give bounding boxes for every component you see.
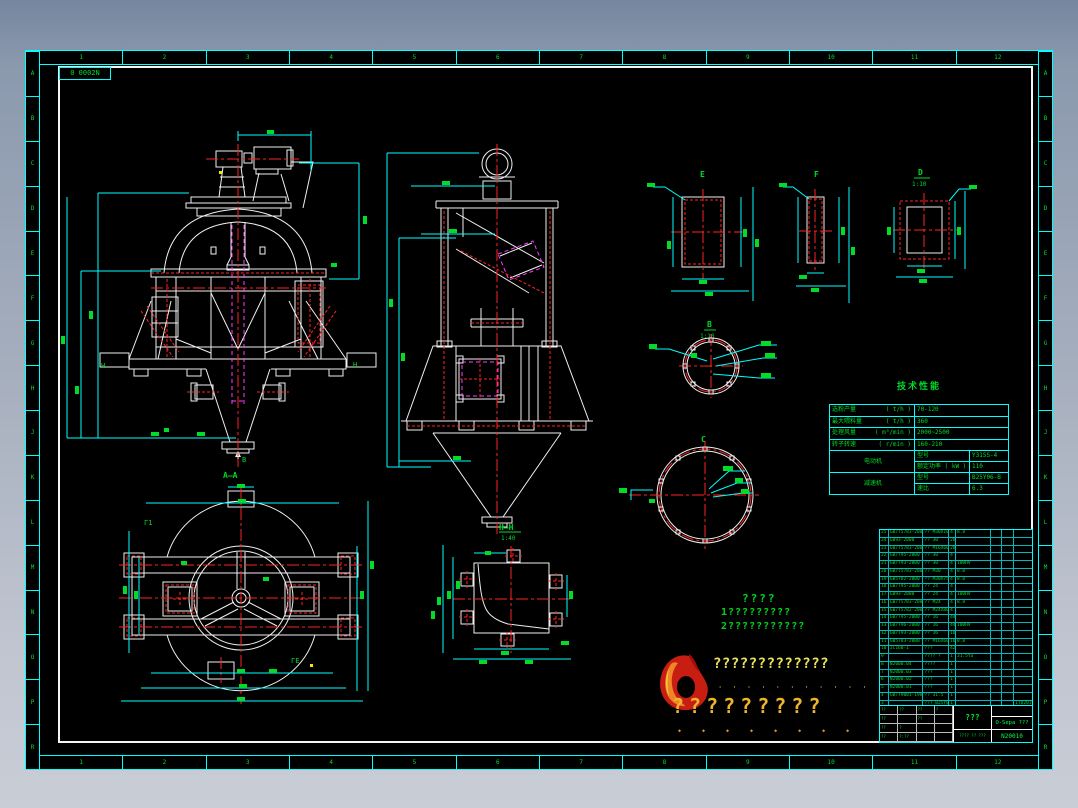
bom-row: 4GB/T9001-1985?? 31.51 bbox=[880, 693, 1032, 701]
title-block-empty-cell bbox=[992, 706, 1032, 717]
bom-cell bbox=[1014, 577, 1032, 584]
bom-cell: 23 bbox=[880, 546, 889, 553]
bom-cell bbox=[1014, 546, 1032, 553]
bom-cell bbox=[991, 670, 1003, 677]
bom-cell: 4 bbox=[949, 608, 956, 615]
bom-row: 10JC160-1???42 bbox=[880, 646, 1032, 654]
bom-cell: ?? M30X100 bbox=[923, 530, 949, 537]
bom-cell: 4 bbox=[949, 561, 956, 568]
plan-section-mark-1: Γ1 bbox=[144, 519, 152, 527]
bom-cell: GB/T5783-2000 bbox=[889, 569, 924, 576]
section-mark-h-left: H bbox=[101, 362, 105, 370]
bom-cell: ???? ? bbox=[923, 654, 949, 661]
bom-row: 23GB/T5783-2000?? M16X6020 bbox=[880, 546, 1032, 554]
bom-cell: 4 bbox=[949, 600, 956, 607]
bom-cell bbox=[991, 608, 1003, 615]
bom-cell bbox=[1002, 631, 1014, 638]
section-mark-h-right: H bbox=[353, 361, 357, 369]
bom-cell: 8.8 bbox=[956, 639, 991, 646]
bom-cell bbox=[1014, 615, 1032, 622]
signature-cell: ?? bbox=[898, 706, 916, 715]
bom-cell bbox=[956, 646, 991, 653]
bom-row: 22GB/T95-2000?? 304 bbox=[880, 553, 1032, 561]
brand-slogan-subscript: ◆ ◆ ◆ ◆ ◆ ◆ ◆ ◆ bbox=[678, 728, 858, 734]
signature-cell bbox=[898, 715, 916, 724]
bom-cell: 1 bbox=[949, 654, 956, 661]
title-block-name: ??? bbox=[954, 706, 991, 730]
detail-c-view: C bbox=[619, 435, 759, 549]
bom-row: 21GB/T93-2000?? 304100HV bbox=[880, 561, 1032, 569]
bom-row: 13GB/T96-2000?? 1644100HV bbox=[880, 623, 1032, 631]
signature-cell: ?? bbox=[917, 715, 935, 724]
bom-cell: GB/T5782-2000 bbox=[889, 608, 924, 615]
section-mark-b: B bbox=[242, 456, 246, 464]
cad-viewer-canvas[interactable]: 123456789101112 123456789101112 ABCDEFGH… bbox=[0, 0, 1078, 808]
bom-cell: GB5782-2000 bbox=[889, 577, 924, 584]
bom-cell bbox=[956, 631, 991, 638]
signature-cell: ?:?? bbox=[898, 733, 916, 742]
detail-b-label: B bbox=[707, 320, 712, 329]
bom-cell: GB5783-2000 bbox=[889, 639, 924, 646]
bom-cell bbox=[991, 530, 1003, 537]
bom-cell bbox=[1014, 654, 1032, 661]
detail-f-view: F bbox=[779, 170, 855, 303]
bom-cell: 10 bbox=[880, 646, 889, 653]
bom-cell bbox=[1014, 608, 1032, 615]
bom-cell: GB/T95-2000 bbox=[889, 553, 924, 560]
bom-cell: GB/T95-2000 bbox=[889, 615, 924, 622]
bom-cell: 5 bbox=[880, 685, 889, 692]
bom-cell bbox=[1002, 592, 1014, 599]
bom-cell bbox=[991, 538, 1003, 545]
signature-cell bbox=[935, 715, 953, 724]
bom-cell: 18 bbox=[880, 584, 889, 591]
bom-cell: 8.8 bbox=[956, 530, 991, 537]
bom-cell bbox=[1002, 546, 1014, 553]
tech-row: 选粉产量( t/h )70-120 bbox=[830, 405, 1008, 417]
bom-cell: 100HV bbox=[956, 623, 991, 630]
bom-cell: 1 bbox=[949, 685, 956, 692]
bom-cell: 22 bbox=[880, 553, 889, 560]
bom-row: 20GB/T5783-2000?? M3048.8 bbox=[880, 569, 1032, 577]
title-block-product: O-Sepa ??? bbox=[992, 717, 1032, 730]
bom-cell bbox=[1014, 646, 1032, 653]
bom-cell: ?? 31.5 bbox=[923, 693, 949, 700]
bom-cell bbox=[991, 600, 1003, 607]
section-hh-view: H—H 1:40 bbox=[431, 523, 573, 664]
bom-cell bbox=[1002, 577, 1014, 584]
bom-cell: 17 bbox=[880, 592, 889, 599]
bom-cell: 12 bbox=[880, 631, 889, 638]
bom-cell bbox=[889, 654, 924, 661]
bom-row: 19GB5782-2000?? M30X7548.8 bbox=[880, 577, 1032, 585]
bom-cell bbox=[1002, 693, 1014, 700]
front-elevation-view: H H B A—A bbox=[61, 130, 376, 480]
section-hh-label: H—H bbox=[499, 523, 514, 532]
bom-cell bbox=[1014, 561, 1032, 568]
bom-cell bbox=[991, 654, 1003, 661]
drawing-sheet[interactable]: 123456789101112 123456789101112 ABCDEFGH… bbox=[25, 50, 1053, 770]
bom-cell bbox=[991, 639, 1003, 646]
bom-cell bbox=[1002, 654, 1014, 661]
bom-cell bbox=[991, 546, 1003, 553]
bom-cell: 1 bbox=[949, 670, 956, 677]
bom-cell: 16 bbox=[949, 639, 956, 646]
bom-cell bbox=[991, 569, 1003, 576]
bom-cell: GB/T5783-2000 bbox=[889, 546, 924, 553]
signature-cell: ?? bbox=[880, 724, 898, 733]
bom-cell: 8.8 bbox=[956, 600, 991, 607]
bom-row: 5N2000.01???1 bbox=[880, 685, 1032, 693]
bom-cell bbox=[1002, 600, 1014, 607]
bom-cell: GB93-2000 bbox=[889, 592, 924, 599]
bom-cell bbox=[1014, 639, 1032, 646]
title-block-code: N20010 bbox=[992, 730, 1032, 742]
bom-cell bbox=[1014, 553, 1032, 560]
bom-cell: N2000.01 bbox=[889, 685, 924, 692]
tech-row: 转子转速( r/min )160-210 bbox=[830, 440, 1008, 452]
detail-d-view: D 1:10 bbox=[887, 168, 977, 283]
signature-cell bbox=[917, 724, 935, 733]
tech-reducer-block: 减速机 型号B25Y06-B 速比6.3 bbox=[830, 473, 1008, 494]
bom-cell: 4 bbox=[949, 592, 956, 599]
brand-company-name: ????????????? bbox=[713, 656, 829, 672]
detail-e-view: E bbox=[647, 170, 759, 301]
bom-cell: ?? 24 bbox=[923, 592, 949, 599]
bom-cell: 16 bbox=[880, 600, 889, 607]
bom-cell: 100HV bbox=[956, 592, 991, 599]
bom-cell: 16 bbox=[949, 631, 956, 638]
bom-cell: 21 bbox=[880, 561, 889, 568]
bom-cell: ?? 24 bbox=[923, 584, 949, 591]
bom-row: 11GB5783-2000?? M16X60168.8 bbox=[880, 639, 1032, 647]
tech-row: 处理风量( m³/min )2000~2500 bbox=[830, 428, 1008, 440]
bom-cell bbox=[1002, 584, 1014, 591]
bom-cell bbox=[1014, 569, 1032, 576]
bom-cell bbox=[956, 553, 991, 560]
bom-cell bbox=[991, 646, 1003, 653]
bom-cell: GB/T96-2000 bbox=[889, 623, 924, 630]
bom-cell: 6 bbox=[880, 677, 889, 684]
detail-f-label: F bbox=[814, 170, 819, 179]
bom-cell bbox=[956, 608, 991, 615]
detail-d-scale: 1:10 bbox=[912, 181, 927, 188]
bom-cell bbox=[991, 631, 1003, 638]
bom-cell: ?? 30 bbox=[923, 561, 949, 568]
bom-cell: GB/T9001-1985 bbox=[889, 693, 924, 700]
plan-section-mark-2: ΓE bbox=[291, 657, 299, 665]
bom-cell: 4 bbox=[949, 530, 956, 537]
bom-cell: 9 bbox=[880, 654, 889, 661]
bom-cell bbox=[1002, 685, 1014, 692]
bom-cell: ?? 30 bbox=[923, 553, 949, 560]
bom-cell bbox=[1002, 662, 1014, 669]
bom-cell bbox=[991, 584, 1003, 591]
bom-cell: 13 bbox=[880, 623, 889, 630]
bom-cell bbox=[956, 685, 991, 692]
signature-cell: ? bbox=[935, 706, 953, 715]
bom-row: 15GB/T5782-2000?? M24X804 bbox=[880, 608, 1032, 616]
bom-cell: ?? M30 bbox=[923, 569, 949, 576]
signature-cell bbox=[917, 733, 935, 742]
bom-cell bbox=[1002, 538, 1014, 545]
bom-cell: 42 bbox=[949, 646, 956, 653]
bom-cell bbox=[991, 592, 1003, 599]
tech-specs-table: 选粉产量( t/h )70-120 最大喂料量( t/h )360 处理风量( … bbox=[829, 404, 1009, 495]
bom-cell: GB/T5783-2000 bbox=[889, 600, 924, 607]
bom-row: 25GB/T5783-2000?? M30X10048.8 bbox=[880, 530, 1032, 538]
bom-cell: N2000.04 bbox=[889, 662, 924, 669]
section-aa-label: A—A bbox=[223, 471, 238, 480]
signature-cell: ?? bbox=[917, 706, 935, 715]
bom-cell: 1 bbox=[949, 693, 956, 700]
tech-row: 最大喂料量( t/h )360 bbox=[830, 417, 1008, 429]
bom-cell bbox=[956, 670, 991, 677]
bom-row: 12GB/T93-2000?? 1616 bbox=[880, 631, 1032, 639]
bom-cell: 4 bbox=[949, 584, 956, 591]
bom-cell: ?? 16 bbox=[923, 623, 949, 630]
bom-cell: 25 bbox=[880, 530, 889, 537]
bom-cell bbox=[1014, 584, 1032, 591]
bom-cell bbox=[1014, 670, 1032, 677]
bom-cell bbox=[991, 561, 1003, 568]
bom-cell bbox=[1014, 592, 1032, 599]
bom-cell bbox=[956, 615, 991, 622]
bom-cell: 4 bbox=[949, 569, 956, 576]
bom-cell bbox=[991, 677, 1003, 684]
bom-cell bbox=[956, 662, 991, 669]
bom-cell: 4 bbox=[949, 553, 956, 560]
title-block-signature-grid: ?????????????????:?? bbox=[880, 706, 954, 742]
bom-cell: 44 bbox=[949, 623, 956, 630]
signature-cell: ? bbox=[898, 724, 916, 733]
bom-cell: 20 bbox=[949, 538, 956, 545]
bom-cell: 1 bbox=[949, 677, 956, 684]
section-hh-scale: 1:40 bbox=[501, 535, 516, 542]
bom-cell bbox=[1014, 631, 1032, 638]
bom-cell: GB/T5783-2000 bbox=[889, 530, 924, 537]
tech-specs-title: 技术性能 bbox=[829, 379, 1009, 392]
bom-cell bbox=[991, 693, 1003, 700]
bom-cell: JC160-1 bbox=[889, 646, 924, 653]
parts-list-table: 25GB/T5783-2000?? M30X10048.824GB93-2000… bbox=[879, 529, 1033, 733]
bom-cell: 15 bbox=[880, 608, 889, 615]
signature-cell: ?? bbox=[880, 715, 898, 724]
bom-cell bbox=[991, 553, 1003, 560]
bom-row: 16GB/T5783-2000?? M2448.8 bbox=[880, 600, 1032, 608]
bom-cell: N2000.02 bbox=[889, 677, 924, 684]
bom-cell: 44 bbox=[949, 615, 956, 622]
bom-cell bbox=[956, 538, 991, 545]
bom-cell: ?? 16 bbox=[923, 631, 949, 638]
bom-row: 17GB93-2000?? 244100HV bbox=[880, 592, 1032, 600]
bom-cell bbox=[956, 693, 991, 700]
bom-cell bbox=[991, 623, 1003, 630]
signature-cell: ?? bbox=[880, 733, 898, 742]
bom-cell bbox=[1014, 662, 1032, 669]
bom-cell: GB/T95-2000 bbox=[889, 584, 924, 591]
bom-cell bbox=[1014, 623, 1032, 630]
bom-cell: 8.8 bbox=[956, 569, 991, 576]
bom-cell: ??? bbox=[923, 646, 949, 653]
bom-cell: 1 bbox=[949, 662, 956, 669]
bom-cell: 100HV bbox=[956, 561, 991, 568]
bom-cell bbox=[991, 685, 1003, 692]
bom-cell bbox=[1014, 600, 1032, 607]
bom-cell: 19 bbox=[880, 577, 889, 584]
bom-cell bbox=[1002, 608, 1014, 615]
bom-cell bbox=[991, 662, 1003, 669]
bom-cell: N2000.03 bbox=[889, 670, 924, 677]
bom-cell: 4 bbox=[880, 693, 889, 700]
bom-cell: ???? bbox=[923, 662, 949, 669]
bom-cell: 8 bbox=[880, 662, 889, 669]
bom-cell: ??? bbox=[923, 685, 949, 692]
bom-cell bbox=[991, 615, 1003, 622]
bom-cell bbox=[1002, 553, 1014, 560]
bom-cell bbox=[1014, 685, 1032, 692]
bom-cell: ??? bbox=[923, 670, 949, 677]
notes-title: ???? bbox=[742, 592, 777, 605]
bom-cell: ?? M16X60 bbox=[923, 639, 949, 646]
brand-slogan: ????????? bbox=[672, 694, 825, 718]
signature-cell: ?? bbox=[880, 706, 898, 715]
bom-row: 7N2000.03???1 bbox=[880, 670, 1032, 678]
bom-cell bbox=[1002, 677, 1014, 684]
bom-cell bbox=[1002, 530, 1014, 537]
bom-cell bbox=[956, 677, 991, 684]
bom-row: 9???? ?131.5Ya bbox=[880, 654, 1032, 662]
bom-row: 6N2000.02???1 bbox=[880, 677, 1032, 685]
bom-cell bbox=[1014, 538, 1032, 545]
bom-cell bbox=[1002, 639, 1014, 646]
bom-cell: 11 bbox=[880, 639, 889, 646]
detail-d-label: D bbox=[918, 168, 923, 177]
bom-cell: GB93-2000 bbox=[889, 538, 924, 545]
bom-cell bbox=[1002, 646, 1014, 653]
bom-cell: GB/T93-2000 bbox=[889, 631, 924, 638]
tech-specs-panel: 技术性能 选粉产量( t/h )70-120 最大喂料量( t/h )360 处… bbox=[829, 379, 1009, 495]
brand-company-subscript: ' ' ' ' ' ' ' ' ' ' ' bbox=[718, 685, 870, 693]
signature-cell bbox=[935, 733, 953, 742]
bom-cell bbox=[1002, 670, 1014, 677]
bom-cell: ?? M16X60 bbox=[923, 546, 949, 553]
bom-cell: ??? bbox=[923, 677, 949, 684]
detail-b-view: B 1:10 bbox=[649, 320, 777, 398]
bom-row: 24GB93-2000?? 3020 bbox=[880, 538, 1032, 546]
bom-cell bbox=[1002, 615, 1014, 622]
bom-cell bbox=[1002, 623, 1014, 630]
bom-cell bbox=[956, 584, 991, 591]
tech-motor-block: 电动机 型号Y315S-4 额定功率 ( kW )110 bbox=[830, 451, 1008, 473]
bom-cell: 7 bbox=[880, 670, 889, 677]
bom-cell: ?? M24X80 bbox=[923, 608, 949, 615]
bom-cell: ?? M30X75 bbox=[923, 577, 949, 584]
bom-cell bbox=[1002, 561, 1014, 568]
bom-cell bbox=[956, 546, 991, 553]
bom-cell: 20 bbox=[949, 546, 956, 553]
notes-line-2: 2??????????? bbox=[721, 621, 805, 632]
signature-cell bbox=[935, 724, 953, 733]
bom-cell bbox=[1014, 693, 1032, 700]
bom-row: 14GB/T95-2000?? 1644 bbox=[880, 615, 1032, 623]
side-elevation-view bbox=[387, 144, 593, 534]
notes-line-1: 1????????? bbox=[721, 607, 791, 618]
bom-cell bbox=[1002, 569, 1014, 576]
bom-cell: 8.8 bbox=[956, 577, 991, 584]
bom-cell: 14 bbox=[880, 615, 889, 622]
bom-cell: 20 bbox=[880, 569, 889, 576]
bom-cell: ?? 30 bbox=[923, 538, 949, 545]
title-block: ?????????????????:?? ??? ???? ?? ??? O-S… bbox=[879, 705, 1033, 743]
detail-e-label: E bbox=[700, 170, 705, 179]
bom-cell: 24 bbox=[880, 538, 889, 545]
bom-cell bbox=[991, 577, 1003, 584]
title-block-bottom-row: ???? ?? ??? bbox=[954, 730, 991, 742]
plan-view: Γ1 ΓE bbox=[119, 484, 374, 704]
bom-row: 18GB/T95-2000?? 244 bbox=[880, 584, 1032, 592]
bom-cell: 31.5Ya bbox=[956, 654, 991, 661]
bom-cell: GB/T93-2000 bbox=[889, 561, 924, 568]
bom-cell: 4 bbox=[949, 577, 956, 584]
bom-cell: ?? 16 bbox=[923, 615, 949, 622]
bom-cell: ?? M24 bbox=[923, 600, 949, 607]
bom-cell bbox=[1014, 677, 1032, 684]
bom-row: 8N2000.04????1 bbox=[880, 662, 1032, 670]
bom-cell bbox=[1014, 530, 1032, 537]
